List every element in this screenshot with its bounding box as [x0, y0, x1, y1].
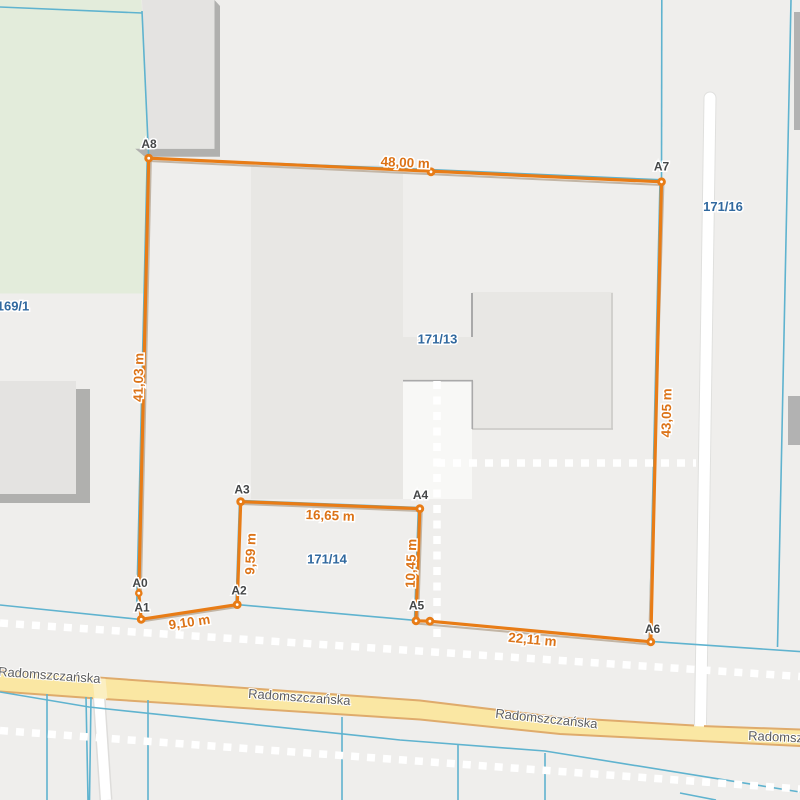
svg-text:10,45 m: 10,45 m	[403, 538, 420, 588]
svg-text:A0: A0	[132, 576, 148, 590]
svg-text:171/14: 171/14	[307, 552, 348, 567]
svg-text:171/16: 171/16	[703, 199, 743, 214]
svg-text:A8: A8	[141, 137, 157, 151]
svg-text:16,65 m: 16,65 m	[305, 507, 355, 524]
svg-text:A6: A6	[645, 622, 661, 636]
svg-text:A3: A3	[234, 483, 250, 497]
svg-text:9,59 m: 9,59 m	[242, 533, 258, 575]
svg-text:A2: A2	[231, 584, 247, 598]
svg-text:A5: A5	[409, 599, 425, 613]
svg-text:A4: A4	[413, 488, 429, 502]
svg-text:169/1: 169/1	[0, 299, 29, 314]
svg-text:41,03 m: 41,03 m	[130, 353, 146, 403]
svg-text:A1: A1	[134, 601, 150, 615]
svg-text:A7: A7	[654, 160, 670, 174]
svg-text:48,00 m: 48,00 m	[380, 154, 430, 171]
svg-text:43,05 m: 43,05 m	[658, 388, 674, 438]
svg-text:171/13: 171/13	[418, 332, 458, 347]
